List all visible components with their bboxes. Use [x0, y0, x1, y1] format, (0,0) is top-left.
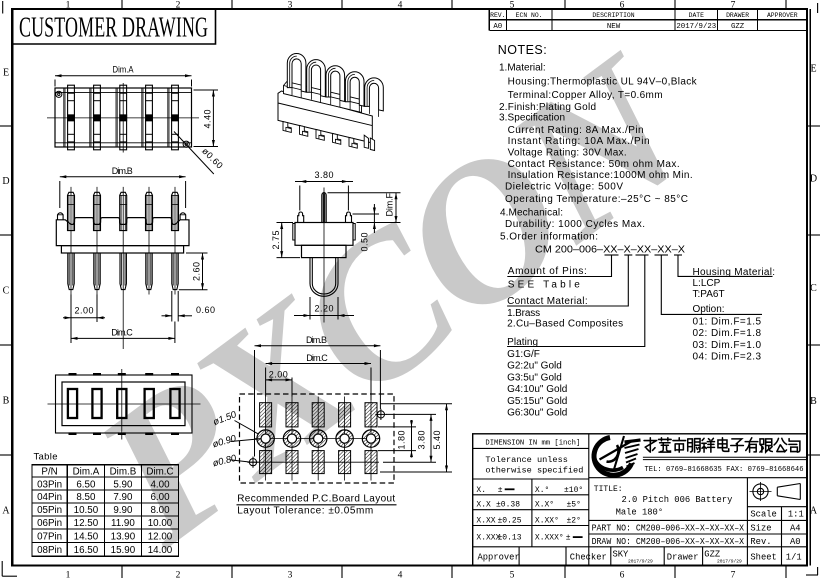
svg-text:2: 2 [176, 571, 181, 578]
svg-text:Option:: Option: [693, 304, 725, 315]
svg-text:1: 1 [66, 571, 71, 578]
svg-text:6: 6 [620, 1, 625, 11]
svg-text:Dim.C: Dim.C [146, 466, 173, 477]
svg-text:TEL: 0769–81668635 FAX: 0769–: TEL: 0769–81668635 FAX: 0769–81668646 [645, 466, 804, 474]
svg-text:G1:G/F: G1:G/F [507, 349, 540, 360]
svg-text:Dim.C: Dim.C [306, 353, 328, 363]
svg-text:2017/9/29: 2017/9/29 [717, 559, 742, 565]
svg-text:10.00: 10.00 [148, 518, 173, 529]
svg-text:Housing Material:: Housing Material: [693, 267, 776, 278]
svg-text:A: A [810, 506, 818, 517]
svg-text:E: E [810, 64, 816, 75]
svg-text:REV.: REV. [490, 12, 505, 19]
svg-text:4.00: 4.00 [150, 479, 170, 490]
svg-text:Dim.B: Dim.B [112, 166, 133, 176]
svg-text:Table: Table [34, 452, 58, 463]
svg-text:SKY: SKY [613, 550, 630, 560]
svg-text:Terminal:Copper Alloy, T=0.6mm: Terminal:Copper Alloy, T=0.6mm [508, 90, 663, 101]
svg-text:Dielectric Voltage: 500V: Dielectric Voltage: 500V [505, 182, 623, 193]
svg-text:DATE: DATE [689, 12, 705, 19]
svg-text:P/N: P/N [41, 466, 57, 477]
svg-text:2017/9/23: 2017/9/23 [676, 23, 716, 31]
svg-text:TITLE:: TITLE: [594, 485, 623, 494]
svg-text:4.40: 4.40 [202, 110, 212, 129]
svg-text:04Pin: 04Pin [37, 492, 62, 503]
svg-text:Plating: Plating [507, 337, 538, 348]
svg-text:Sheet: Sheet [750, 553, 776, 563]
svg-text:3.80: 3.80 [417, 431, 427, 450]
svg-text:B: B [3, 396, 10, 407]
svg-text:Contact Material:: Contact Material: [507, 296, 587, 307]
svg-text:otherwise specified: otherwise specified [485, 466, 583, 476]
svg-text:6.00: 6.00 [150, 492, 170, 503]
svg-text:PART NO: CM200–006–XX–X–XX–XX: PART NO: CM200–006–XX–X–XX–XX–X [592, 524, 745, 534]
svg-text:5.90: 5.90 [113, 479, 133, 490]
svg-text:Insulation Resistance:1000M oh: Insulation Resistance:1000M ohm Min. [508, 170, 693, 181]
svg-text:A4: A4 [790, 524, 801, 534]
svg-text:6: 6 [620, 571, 625, 578]
svg-text:12.00: 12.00 [148, 531, 173, 542]
svg-text:4: 4 [398, 1, 403, 11]
svg-text:NEW: NEW [607, 23, 621, 31]
svg-text:APPROVER: APPROVER [767, 12, 798, 19]
svg-text:C: C [3, 286, 10, 297]
svg-text:Contact Resistance: 50m ohm Ma: Contact Resistance: 50m ohm Max. [508, 159, 680, 170]
svg-text:13.90: 13.90 [111, 531, 136, 542]
svg-text:02: Dim.F=1.8: 02: Dim.F=1.8 [693, 328, 762, 339]
svg-text:1.Brass: 1.Brass [507, 308, 540, 319]
svg-text:±0.38: ±0.38 [496, 501, 520, 510]
svg-text:±0.25: ±0.25 [498, 517, 522, 526]
svg-text:A: A [2, 506, 10, 517]
svg-text:Instant Rating: 10A Max./Pin: Instant Rating: 10A Max./Pin [508, 136, 650, 147]
svg-text:14.50: 14.50 [74, 531, 99, 542]
svg-text:15.90: 15.90 [111, 545, 136, 556]
svg-text:3: 3 [288, 571, 293, 578]
svg-text:2: 2 [176, 1, 181, 11]
svg-text:±: ± [566, 534, 571, 543]
svg-text:DESCRIPTION: DESCRIPTION [592, 12, 634, 19]
svg-text:E: E [3, 68, 9, 79]
svg-text:4.Mechanical:: 4.Mechanical: [500, 208, 563, 219]
svg-text:12.50: 12.50 [74, 518, 99, 529]
svg-text:01: Dim.F=1.5: 01: Dim.F=1.5 [693, 316, 762, 327]
svg-text:8.50: 8.50 [76, 492, 96, 503]
svg-text:GZZ: GZZ [704, 550, 720, 560]
svg-text:2.60: 2.60 [191, 262, 201, 281]
svg-text:2.20: 2.20 [315, 303, 334, 313]
svg-text:G5:15u" Gold: G5:15u" Gold [507, 396, 567, 407]
svg-text:G3:5u" Gold: G3:5u" Gold [507, 372, 562, 383]
svg-text:X.XX: X.XX [476, 517, 495, 526]
svg-text:DIMENSION IN mm [inch]: DIMENSION IN mm [inch] [485, 440, 580, 448]
svg-text:±: ± [498, 486, 503, 495]
svg-text:1/1: 1/1 [786, 553, 802, 563]
svg-text:10.50: 10.50 [74, 505, 99, 516]
svg-text:3.80: 3.80 [315, 170, 334, 180]
svg-text:08Pin: 08Pin [37, 545, 62, 556]
svg-text:Dim.A: Dim.A [113, 65, 134, 75]
svg-text:Size: Size [750, 524, 771, 534]
svg-text:5: 5 [510, 571, 515, 578]
svg-text:16.50: 16.50 [74, 545, 99, 556]
svg-text:7: 7 [731, 571, 736, 578]
svg-text:0.60: 0.60 [196, 305, 215, 315]
svg-text:2.0 Pitch 006 Battery: 2.0 Pitch 006 Battery [622, 495, 733, 505]
svg-text:2.Cu–Based Composites: 2.Cu–Based Composites [507, 319, 623, 330]
svg-text:Dim.B: Dim.B [306, 335, 327, 345]
svg-text:±2°: ±2° [567, 517, 581, 526]
svg-text:A0: A0 [493, 23, 502, 31]
svg-text:1.Material:: 1.Material: [499, 62, 546, 73]
svg-text:D: D [810, 174, 817, 185]
svg-text:NOTES:: NOTES: [498, 43, 548, 57]
svg-text:Checker: Checker [570, 553, 607, 563]
svg-text:14.00: 14.00 [148, 545, 173, 556]
svg-text:5.Order information:: 5.Order information: [500, 232, 598, 243]
svg-text:Rev.: Rev. [750, 537, 771, 547]
svg-text:1.80: 1.80 [397, 431, 407, 450]
svg-text:Tolerance unless: Tolerance unless [485, 455, 568, 465]
svg-text:A0: A0 [790, 537, 801, 547]
svg-text:03: Dim.F=1.0: 03: Dim.F=1.0 [693, 340, 762, 351]
svg-text:GZZ: GZZ [731, 23, 745, 31]
svg-text:Housing:Thermoplastic UL 94V–0: Housing:Thermoplastic UL 94V–0,Black [508, 76, 698, 87]
svg-text:X.X°: X.X° [535, 501, 554, 510]
svg-text:9.90: 9.90 [113, 505, 133, 516]
svg-text:06Pin: 06Pin [37, 518, 62, 529]
svg-text:3.Specification: 3.Specification [499, 113, 565, 124]
svg-text:DRAWER: DRAWER [726, 12, 749, 19]
svg-text:G2:2u" Gold: G2:2u" Gold [507, 361, 562, 372]
svg-text:T:PA6T: T:PA6T [693, 289, 725, 300]
svg-text:2017/9/29: 2017/9/29 [628, 559, 653, 565]
svg-text:Approver: Approver [478, 553, 520, 563]
svg-text:B: B [810, 396, 817, 407]
svg-text:Drawer: Drawer [667, 553, 699, 563]
svg-text:Voltage Rating: 30V Max.: Voltage Rating: 30V Max. [508, 148, 627, 159]
svg-text:Current Rating: 8A Max./Pin: Current Rating: 8A Max./Pin [508, 125, 644, 136]
svg-text:X.X: X.X [476, 501, 491, 510]
svg-text:D: D [2, 176, 9, 187]
svg-text:Scale: Scale [750, 510, 776, 520]
svg-text:Recommended P.C.Board Layout: Recommended P.C.Board Layout [237, 494, 395, 505]
svg-text:CM 200–006–XX–X–XX–XX–X: CM 200–006–XX–X–XX–XX–X [535, 243, 685, 255]
svg-text:Amount of Pins:: Amount of Pins: [508, 266, 587, 277]
svg-text:±5°: ±5° [567, 501, 581, 510]
svg-text:7: 7 [731, 1, 736, 11]
svg-text:Dim.A: Dim.A [73, 466, 100, 477]
svg-text:G4:10u" Gold: G4:10u" Gold [507, 384, 567, 395]
svg-text:2.75: 2.75 [271, 231, 281, 250]
svg-text:Dim.C: Dim.C [111, 328, 133, 338]
svg-text:Dim.F: Dim.F [385, 193, 395, 217]
svg-text:Durability: 1000 Cycles Max.: Durability: 1000 Cycles Max. [505, 219, 645, 230]
svg-text:1: 1 [66, 1, 71, 11]
svg-text:DRAW NO: CM200–006–XX–X–XX–XX: DRAW NO: CM200–006–XX–X–XX–XX–X [592, 537, 745, 547]
svg-text:X.: X. [476, 486, 486, 495]
svg-text:05Pin: 05Pin [37, 505, 62, 516]
svg-text:2.00: 2.00 [75, 305, 94, 315]
svg-text:07Pin: 07Pin [37, 531, 62, 542]
svg-text:L:LCP: L:LCP [693, 278, 721, 289]
svg-text:7.90: 7.90 [113, 492, 133, 503]
svg-text:C: C [810, 283, 817, 294]
svg-text:CUSTOMER DRAWING: CUSTOMER DRAWING [19, 13, 208, 44]
svg-text:Layout Tolerance: ±0.05mm: Layout Tolerance: ±0.05mm [237, 506, 373, 517]
svg-text:X.XX°: X.XX° [535, 517, 559, 526]
svg-text:5.40: 5.40 [432, 431, 442, 450]
svg-text:G6:30u" Gold: G6:30u" Gold [507, 408, 567, 419]
svg-text:4: 4 [398, 571, 403, 578]
svg-text:0.50: 0.50 [359, 233, 369, 252]
svg-text:03Pin: 03Pin [37, 479, 62, 490]
svg-text:Operating Temperature:–25°C ~: Operating Temperature:–25°C ~ 85°C [505, 194, 688, 205]
svg-text:SEE Table: SEE Table [508, 280, 580, 291]
svg-text:±0.13: ±0.13 [498, 534, 522, 543]
svg-text:04: Dim.F=2.3: 04: Dim.F=2.3 [693, 351, 762, 362]
svg-text:±10°: ±10° [564, 486, 583, 495]
svg-text:5: 5 [510, 1, 515, 11]
svg-text:2.Finish:Plating Gold: 2.Finish:Plating Gold [499, 102, 596, 113]
svg-text:X.XXX°: X.XXX° [535, 534, 564, 543]
svg-text:ECN NO.: ECN NO. [516, 12, 543, 19]
svg-text:1:1: 1:1 [788, 510, 804, 520]
svg-text:8.00: 8.00 [150, 505, 170, 516]
svg-text:Dim.B: Dim.B [110, 466, 137, 477]
svg-text:6.50: 6.50 [76, 479, 96, 490]
svg-text:X.°: X.° [535, 486, 549, 495]
svg-text:2.00: 2.00 [269, 369, 288, 379]
svg-text:Male 180°: Male 180° [616, 507, 664, 517]
svg-text:11.90: 11.90 [111, 518, 135, 529]
svg-text:3: 3 [288, 1, 293, 11]
